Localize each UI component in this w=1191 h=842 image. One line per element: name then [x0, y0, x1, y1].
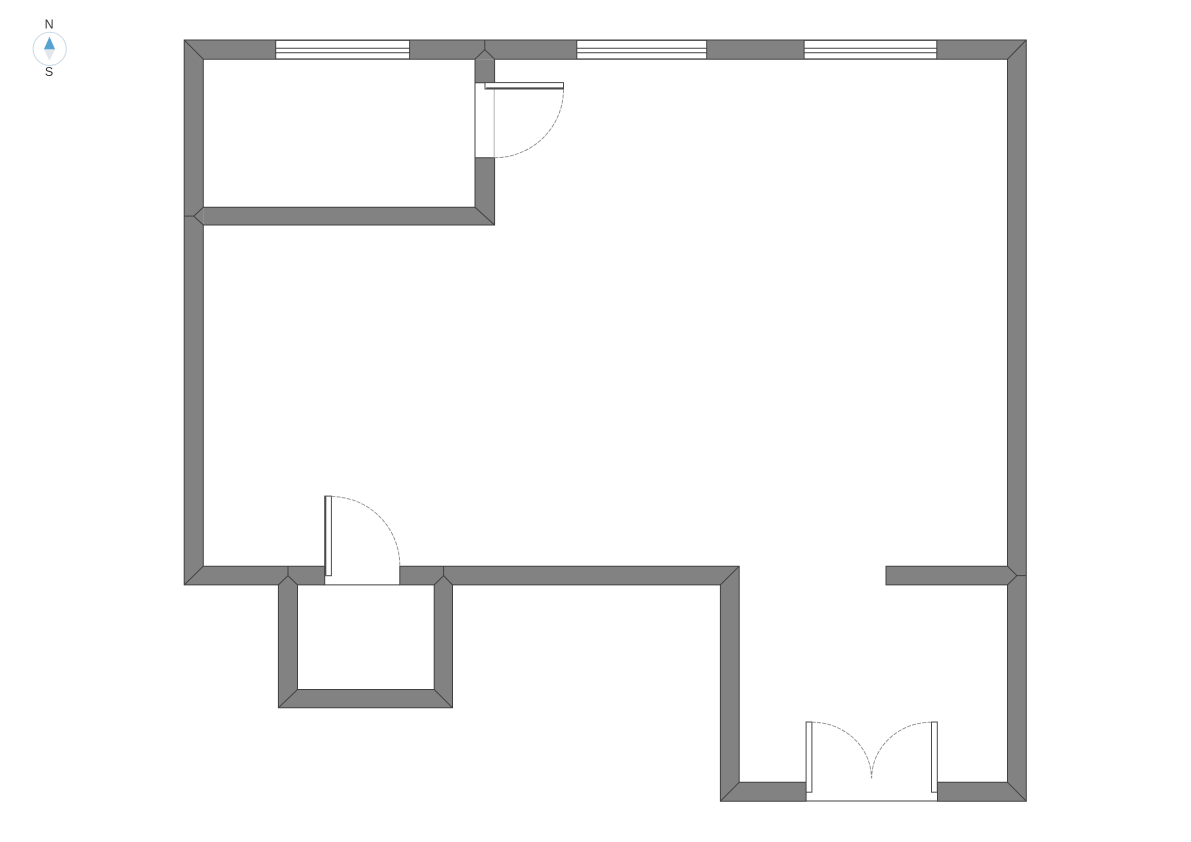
svg-text:S: S — [45, 65, 53, 79]
svg-text:N: N — [45, 17, 54, 31]
